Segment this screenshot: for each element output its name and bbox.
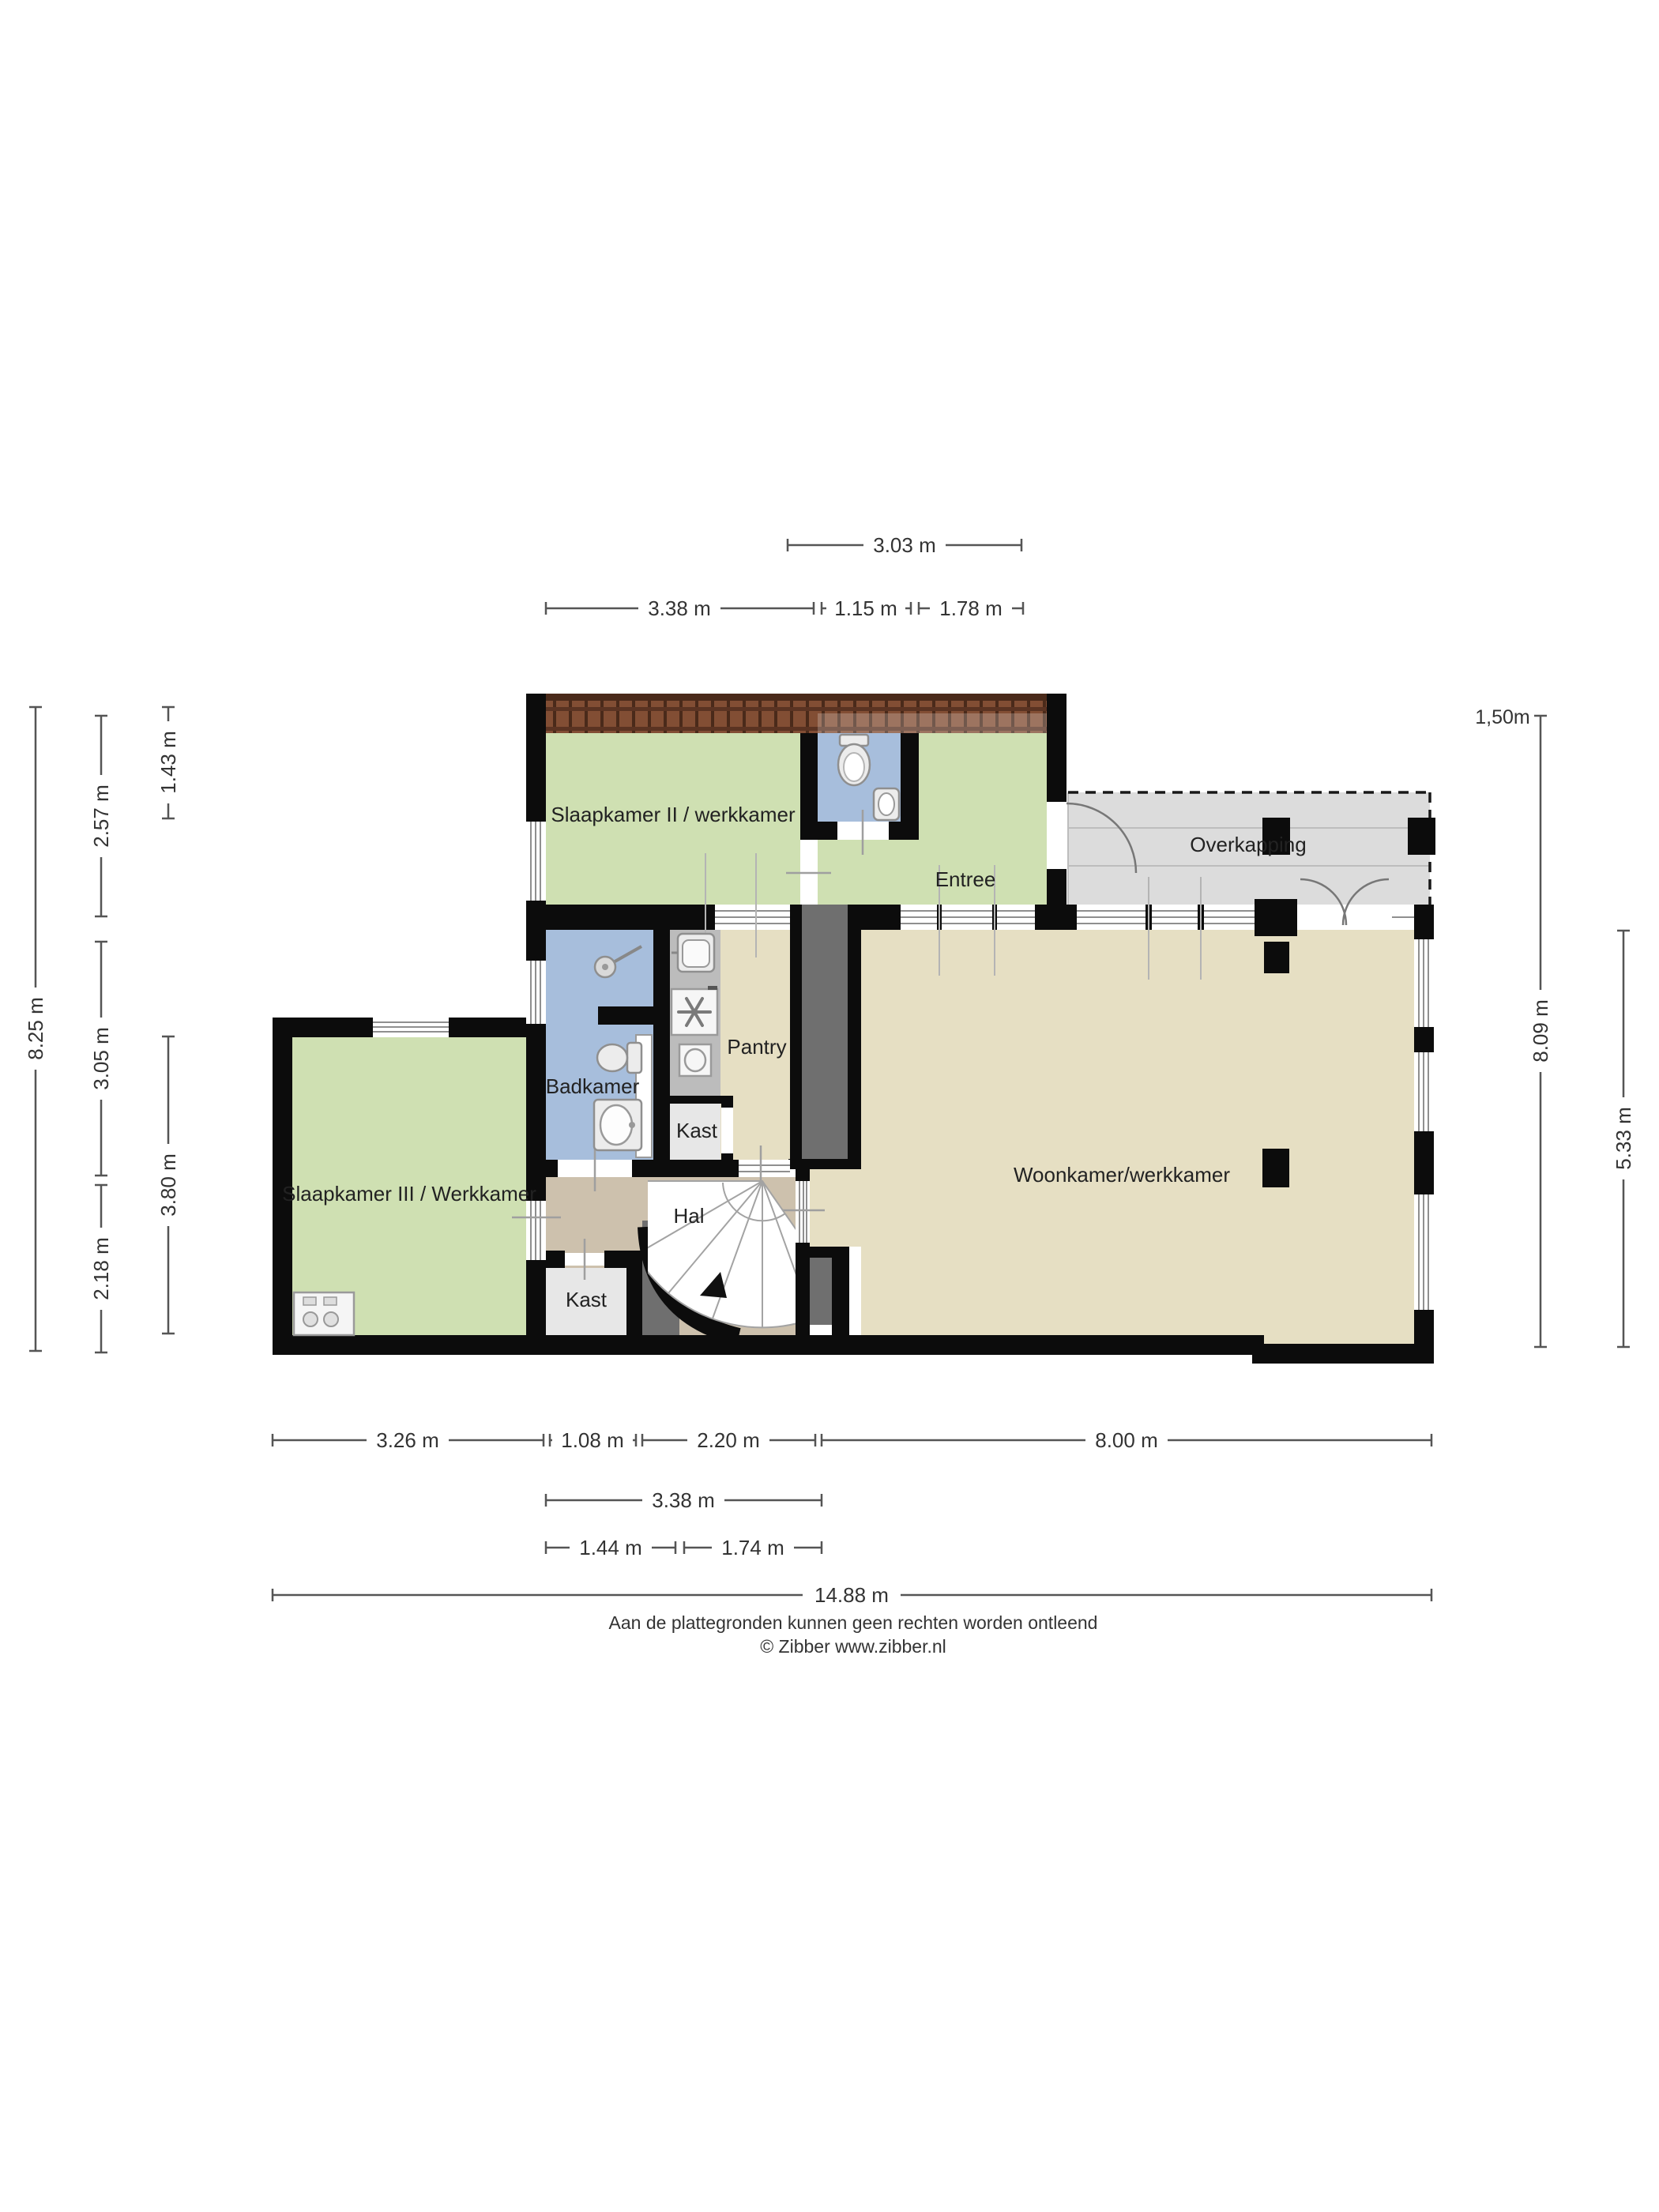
room-label-kast-pantry: Kast	[676, 1119, 718, 1142]
room-label-woonkamer: Woonkamer/werkkamer	[1014, 1163, 1230, 1187]
window	[526, 822, 546, 901]
dim-label: 8.09 m	[1529, 999, 1552, 1063]
door-kast-pantry	[721, 1108, 733, 1153]
floor-plan-page: Slaapkamer II / werkkamer Entree Overkap…	[0, 0, 1659, 2212]
column	[1262, 1149, 1289, 1187]
corner-sink-icon	[874, 788, 899, 820]
window	[1414, 939, 1434, 1027]
column	[1264, 942, 1289, 973]
dim-label: 14.88 m	[814, 1583, 889, 1607]
dim-label: 5.33 m	[1612, 1107, 1635, 1170]
room-label-pantry: Pantry	[727, 1035, 786, 1059]
dim-label: 3.05 m	[89, 1027, 113, 1090]
floor-entree-strip	[818, 840, 919, 905]
floor-woonkamer-vestibule	[810, 1169, 861, 1247]
toilet-icon	[838, 735, 870, 785]
floor-plan: Slaapkamer II / werkkamer Entree Overkap…	[0, 0, 1659, 2212]
dim-label: 3.03 m	[873, 533, 936, 557]
window	[1414, 1194, 1434, 1310]
overkapping-post	[1408, 818, 1435, 855]
dim-label: 1.78 m	[939, 596, 1003, 620]
window	[1414, 1052, 1434, 1131]
dim-label: 3.38 m	[648, 596, 711, 620]
dim-label: 2.20 m	[697, 1428, 760, 1452]
room-label-hal: Hal	[673, 1204, 704, 1228]
dim-label: 8.25 m	[24, 997, 47, 1060]
dim-line: 1.08 m	[550, 1428, 636, 1452]
cooktop-icon	[671, 986, 717, 1035]
floor-woonkamer-step	[1252, 1335, 1414, 1344]
meter-cupboard	[294, 1292, 354, 1335]
toilet-icon	[597, 1043, 641, 1073]
dim-label: 1.08 m	[561, 1428, 624, 1452]
window	[715, 905, 790, 930]
room-label-slaapkamer2: Slaapkamer II / werkkamer	[551, 803, 796, 826]
washbasin-icon	[594, 1100, 641, 1150]
floor-corridor	[802, 905, 848, 1159]
stair-slot	[810, 1258, 832, 1325]
footer-disclaimer: Aan de plattegronden kunnen geen rechten…	[609, 1612, 1098, 1633]
oven-icon	[679, 1044, 711, 1076]
room-label-entree: Entree	[935, 867, 996, 891]
dim-label: 1.15 m	[834, 596, 897, 620]
dim-label: 3.38 m	[652, 1488, 715, 1512]
window	[526, 961, 546, 1024]
window	[1077, 905, 1255, 930]
dim-label: 3.26 m	[376, 1428, 439, 1452]
window	[373, 1018, 449, 1037]
window	[1392, 905, 1414, 930]
dim-label: 1.74 m	[721, 1536, 784, 1559]
roof-strip	[526, 694, 1066, 733]
dim-note: 1,50m	[1475, 706, 1529, 728]
floor-woonkamer	[861, 930, 1414, 1335]
dim-label: 1.43 m	[156, 731, 180, 794]
dim-label: 1.44 m	[579, 1536, 642, 1559]
room-label-kast-hal: Kast	[566, 1288, 608, 1311]
dim-label: 3.80 m	[156, 1153, 180, 1217]
room-label-badkamer: Badkamer	[546, 1074, 640, 1098]
dim-label: 2.18 m	[89, 1237, 113, 1300]
kitchen-sink-icon	[671, 934, 714, 972]
footer-copyright: © Zibber www.zibber.nl	[760, 1636, 946, 1657]
dim-label: 8.00 m	[1095, 1428, 1158, 1452]
room-label-slaapkamer3: Slaapkamer III / Werkkamer	[282, 1182, 536, 1206]
dim-label: 2.57 m	[89, 784, 113, 848]
window	[901, 905, 1035, 930]
room-label-overkapping: Overkapping	[1190, 833, 1306, 856]
